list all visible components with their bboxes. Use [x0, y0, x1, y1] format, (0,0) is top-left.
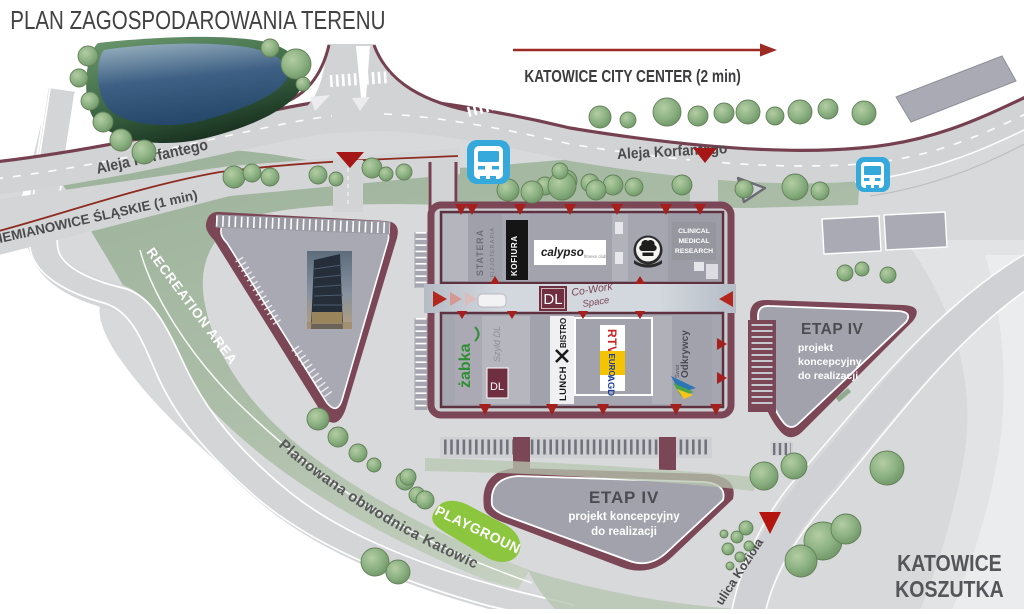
svg-text:żabka: żabka	[457, 343, 474, 388]
svg-text:CLINICAL: CLINICAL	[678, 228, 710, 235]
svg-text:PLAN ZAGOSPODAROWANIA TERENU: PLAN ZAGOSPODAROWANIA TERENU	[10, 6, 385, 35]
svg-text:Świat: Świat	[673, 364, 681, 378]
svg-text:projekt koncepcyjny: projekt koncepcyjny	[568, 511, 680, 523]
svg-text:KOSZUTKA: KOSZUTKA	[895, 577, 1004, 603]
svg-text:KOFIURA: KOFIURA	[510, 235, 519, 276]
svg-text:ETAP IV: ETAP IV	[801, 321, 864, 338]
svg-text:DL: DL	[543, 291, 562, 308]
svg-text:DL: DL	[490, 381, 504, 393]
svg-text:ETAP IV: ETAP IV	[589, 488, 659, 507]
svg-text:KATOWICE: KATOWICE	[897, 551, 1002, 577]
svg-text:RTV: RTV	[605, 329, 619, 355]
svg-text:RESEARCH: RESEARCH	[675, 248, 713, 255]
svg-text:MEDICAL: MEDICAL	[679, 238, 710, 245]
svg-text:F.I.Z.J.O.T.E.R.A.P.I.A: F.I.Z.J.O.T.E.R.A.P.I.A	[490, 228, 496, 277]
svg-text:fitness club: fitness club	[584, 254, 607, 259]
svg-text:calypso: calypso	[541, 247, 584, 259]
svg-text:do realizacji: do realizacji	[591, 526, 657, 538]
svg-text:Szyld DL: Szyld DL	[492, 326, 502, 362]
svg-text:do realizacji: do realizacji	[798, 370, 858, 382]
svg-text:KATOWICE CITY CENTER (2 min): KATOWICE CITY CENTER (2 min)	[524, 67, 740, 86]
svg-text:EURO: EURO	[607, 354, 616, 377]
svg-text:AGD: AGD	[605, 375, 616, 396]
svg-text:Odkrywcy: Odkrywcy	[680, 330, 691, 378]
svg-text:koncepcyjny: koncepcyjny	[798, 356, 862, 368]
svg-text:STATERA: STATERA	[475, 229, 485, 276]
svg-text:projekt: projekt	[798, 342, 834, 354]
svg-text:LUNCH: LUNCH	[558, 366, 569, 401]
svg-text:BISTRO: BISTRO	[559, 318, 568, 348]
